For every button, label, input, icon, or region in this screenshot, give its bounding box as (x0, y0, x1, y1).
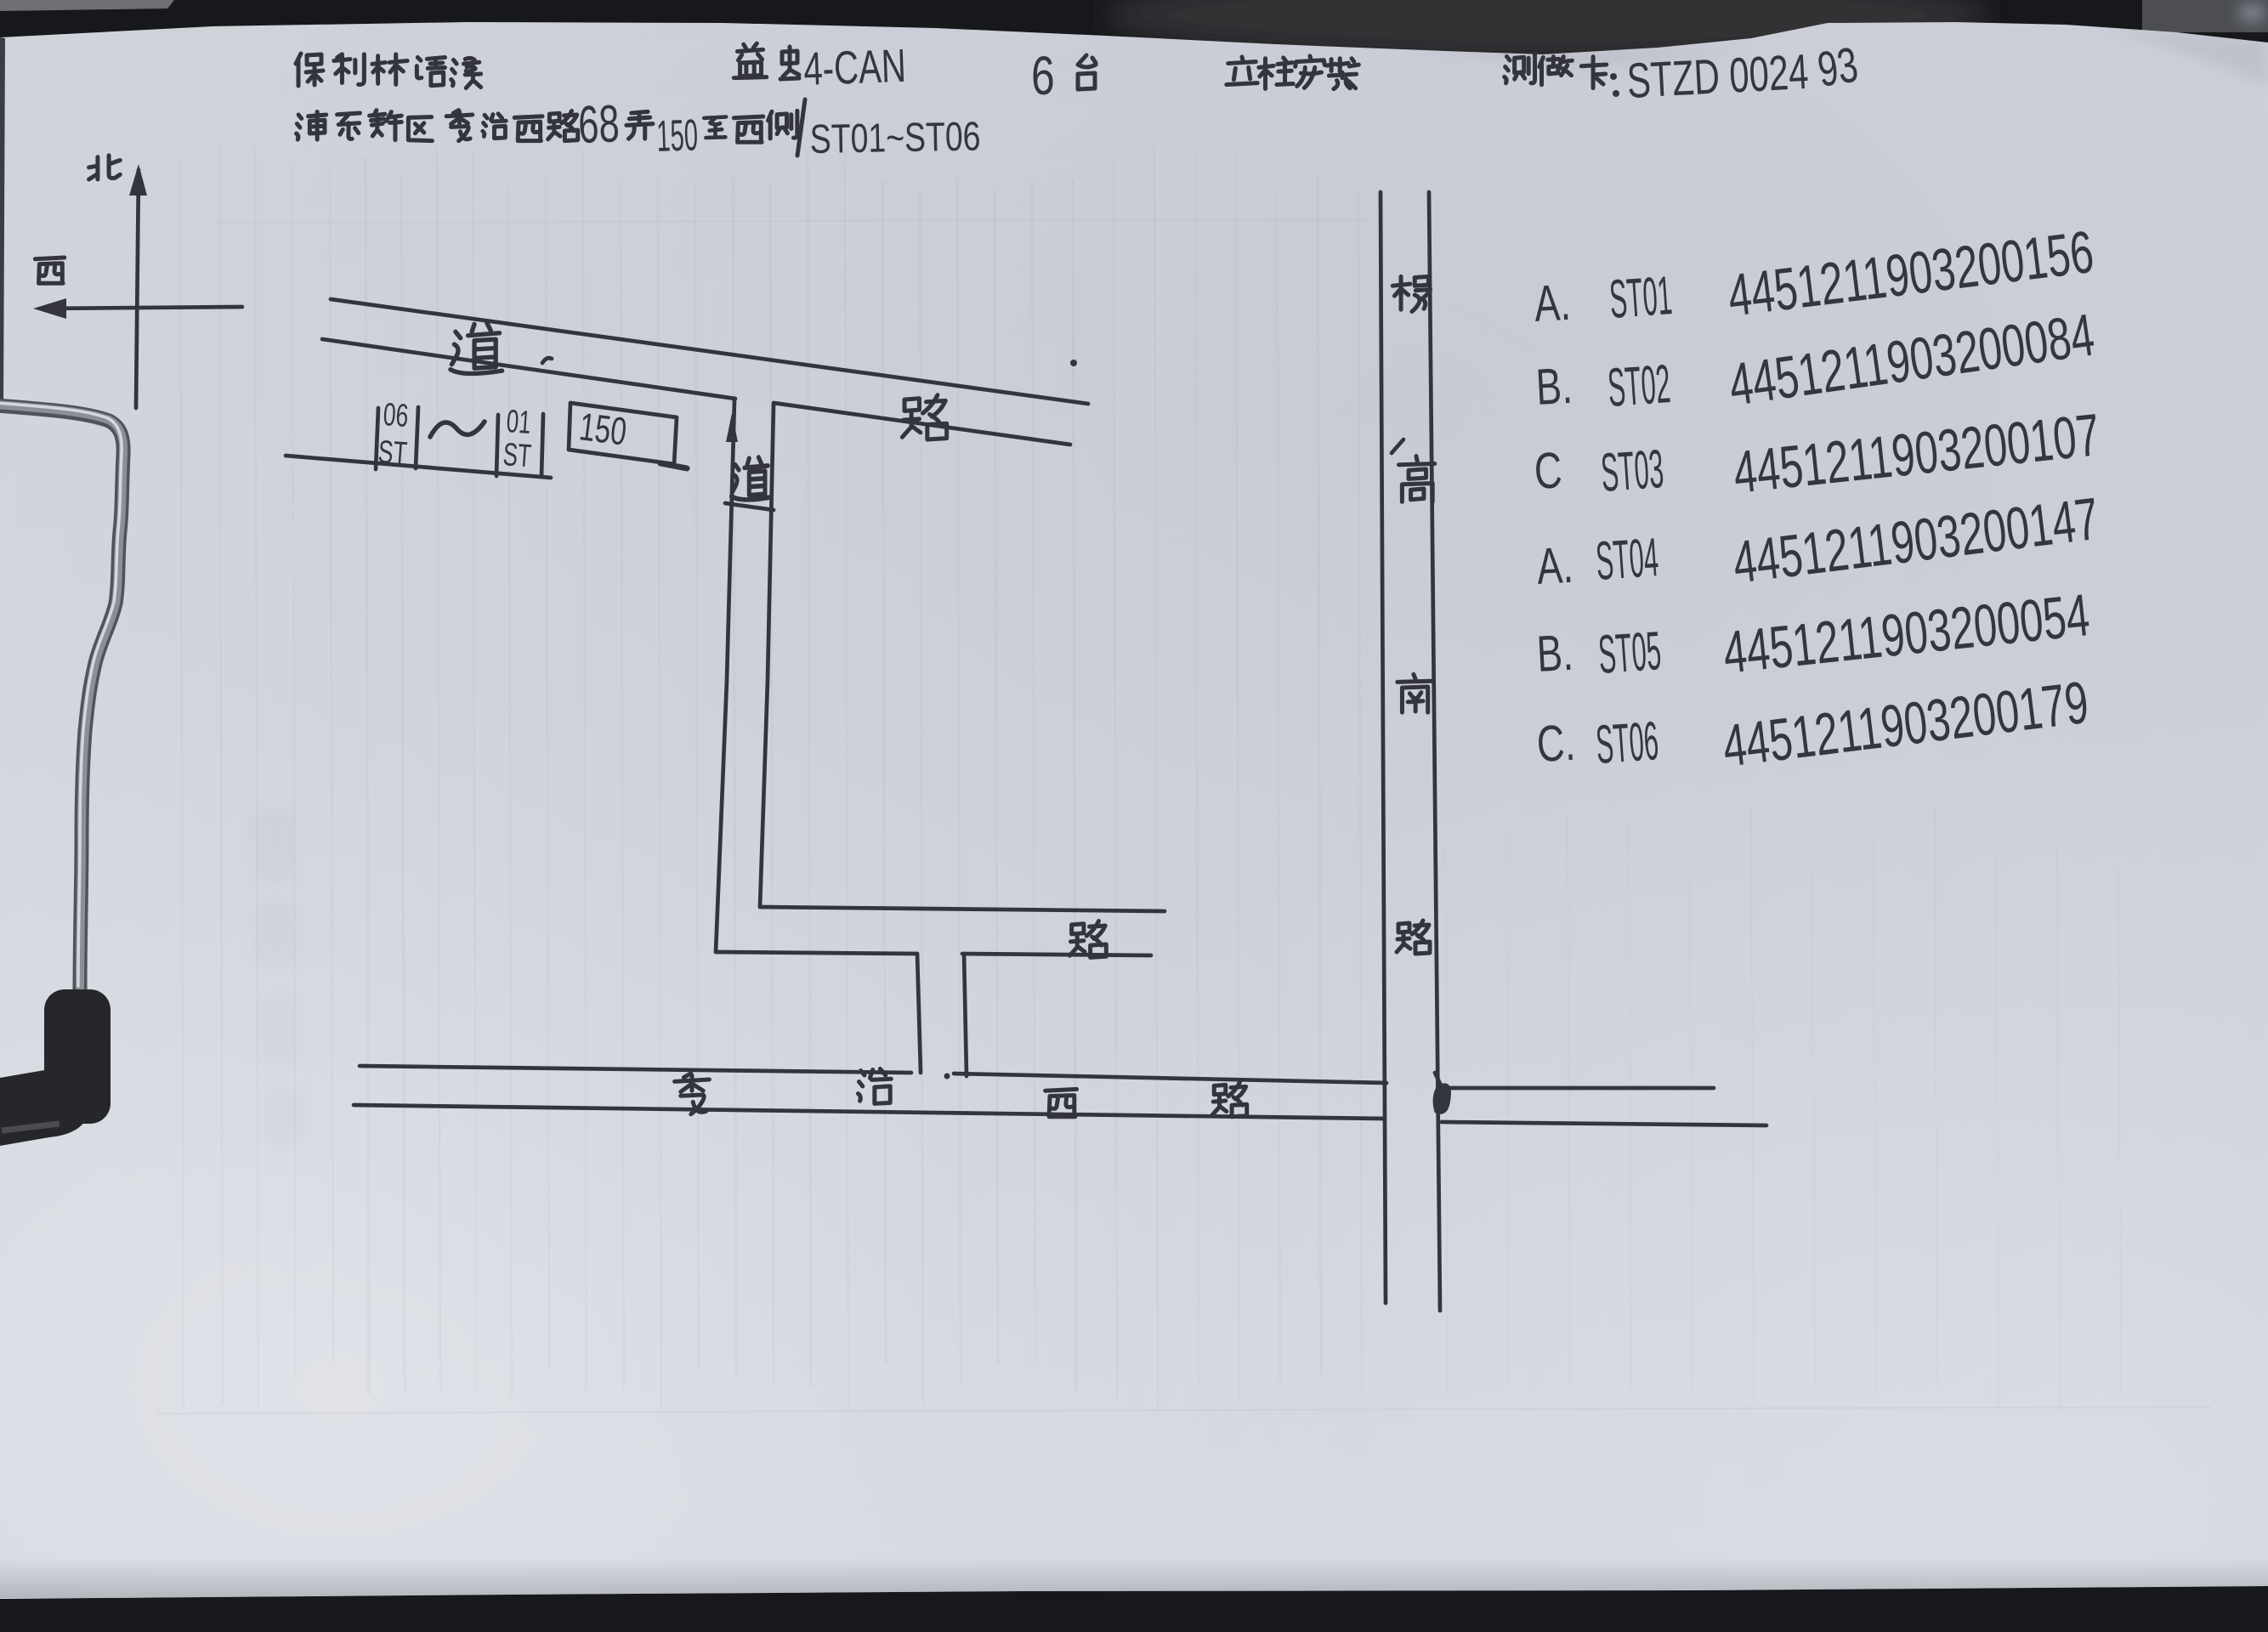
svg-text:ST03: ST03 (1599, 439, 1665, 503)
svg-text:ST: ST (377, 433, 408, 471)
svg-text:ST06: ST06 (1594, 711, 1660, 775)
svg-text:ST05: ST05 (1596, 620, 1663, 685)
svg-text:A.: A. (1533, 275, 1572, 333)
svg-text:4-CAN: 4-CAN (802, 40, 907, 96)
svg-text:01: 01 (505, 403, 532, 440)
svg-text:C: C (1533, 442, 1563, 500)
svg-text:ST04: ST04 (1594, 527, 1660, 592)
svg-text:ST01: ST01 (1607, 265, 1674, 330)
svg-text:06: 06 (382, 395, 409, 433)
svg-text:6: 6 (1031, 46, 1055, 106)
svg-text:150: 150 (577, 405, 629, 454)
svg-text:ST02: ST02 (1606, 354, 1672, 418)
svg-text:B.: B. (1534, 358, 1573, 416)
svg-text:ST: ST (502, 436, 532, 473)
svg-text:C.: C. (1535, 715, 1576, 773)
svg-text:STZD 0024: STZD 0024 (1625, 43, 1810, 108)
svg-text:B.: B. (1535, 625, 1574, 683)
svg-text:ST01~ST06: ST01~ST06 (809, 114, 981, 162)
svg-text:68: 68 (577, 95, 621, 155)
svg-text:A.: A. (1535, 537, 1574, 596)
svg-text:150: 150 (655, 110, 699, 161)
